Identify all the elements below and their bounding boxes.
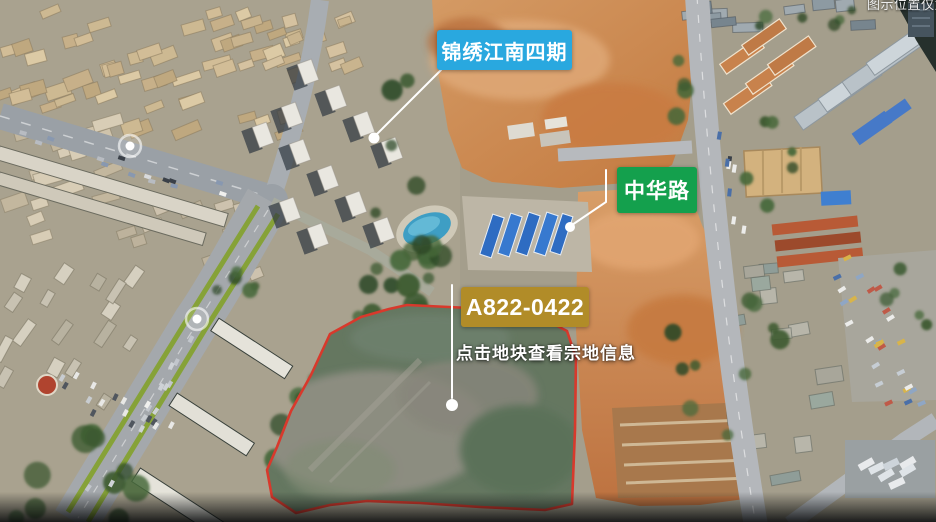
parcel-click-hint: 点击地块查看宗地信息 <box>456 339 636 364</box>
estate-leader-dot <box>369 133 380 144</box>
label-parcel-id: A822-0422 <box>461 287 589 327</box>
map-viewport: 锦绣江南四期 中华路 A822-0422 点击地块查看宗地信息 图示位置仅为 <box>0 0 936 522</box>
bottom-vignette <box>0 492 936 522</box>
label-estate-jinxiu-jiangnan-4: 锦绣江南四期 <box>437 30 572 70</box>
blue-roof-sheds <box>462 196 592 272</box>
road-leader-dot <box>565 222 575 232</box>
aerial-photo[interactable] <box>0 0 936 522</box>
watermark-text: 图示位置仅为 <box>867 0 936 13</box>
label-zhonghua-road: 中华路 <box>617 167 697 213</box>
parcel-leader-dot <box>446 399 458 411</box>
